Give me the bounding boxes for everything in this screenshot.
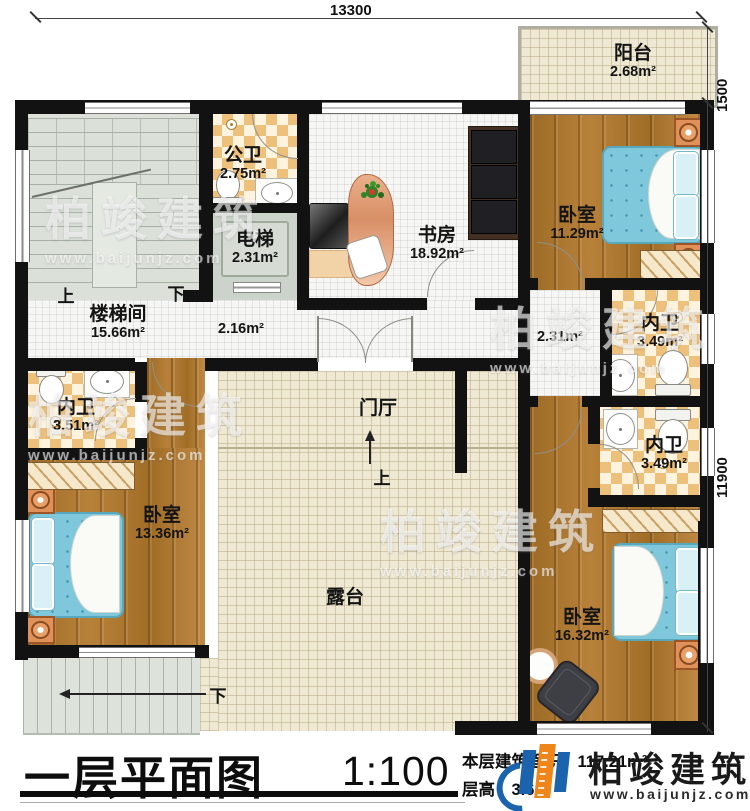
window bbox=[537, 723, 651, 735]
dimension-top-value: 13300 bbox=[330, 2, 372, 19]
title-underline bbox=[20, 791, 458, 797]
nightstand bbox=[26, 616, 55, 644]
wall bbox=[199, 213, 213, 300]
wall bbox=[28, 448, 147, 460]
stair-treads-top bbox=[28, 118, 199, 184]
label-bedroom-se: 卧室16.32m² bbox=[555, 608, 609, 644]
entry-up-label: 上 bbox=[374, 464, 391, 489]
label-bedroom-sw: 卧室13.36m² bbox=[135, 506, 189, 542]
window bbox=[701, 150, 715, 243]
wardrobe-ne bbox=[640, 250, 702, 279]
stair-landing bbox=[92, 182, 137, 288]
label-corridor-right: 2.31m² bbox=[537, 330, 583, 346]
elevator-door bbox=[233, 282, 281, 293]
dimension-line-right bbox=[707, 28, 708, 732]
bed-sw-pillow bbox=[32, 564, 54, 610]
window bbox=[701, 428, 715, 476]
dimension-right-upper-value: 1500 bbox=[714, 42, 731, 112]
bed-sw-duvet bbox=[70, 515, 120, 613]
bath-se-sink bbox=[606, 413, 635, 445]
stair-down-label: 下 bbox=[168, 280, 185, 305]
wall bbox=[135, 362, 147, 402]
sofa-cushion bbox=[471, 130, 517, 164]
bath-w-sink bbox=[90, 369, 124, 394]
window bbox=[701, 314, 715, 364]
label-study: 书房18.92m² bbox=[410, 226, 464, 262]
bed-sw-pillow bbox=[32, 518, 54, 564]
wall bbox=[309, 298, 427, 310]
wall bbox=[518, 100, 530, 731]
window bbox=[322, 102, 462, 114]
wall bbox=[28, 358, 135, 371]
label-stairwell: 楼梯间15.66m² bbox=[89, 305, 146, 341]
outdoor-down-label: 下 bbox=[210, 682, 227, 707]
label-terrace: 露台 bbox=[326, 588, 364, 609]
entry-up-arrow-stem bbox=[369, 440, 371, 464]
public-bath-sink bbox=[261, 182, 293, 204]
wall bbox=[205, 358, 318, 371]
wall bbox=[183, 290, 213, 302]
wall bbox=[530, 396, 538, 407]
sofa-cushion bbox=[471, 200, 517, 234]
bed-ne-pillow bbox=[674, 195, 698, 239]
label-elevator: 电梯2.31m² bbox=[232, 230, 278, 266]
label-bath-se: 内卫3.49m² bbox=[641, 436, 687, 472]
dimension-right-lower-value: 11900 bbox=[714, 398, 731, 498]
foyer-step-line bbox=[218, 447, 518, 449]
wardrobe-se bbox=[602, 509, 704, 533]
wall bbox=[600, 495, 702, 507]
balcony-sliding-door bbox=[530, 101, 685, 115]
label-balcony: 阳台2.68m² bbox=[610, 44, 656, 80]
brand-url: www.baijunjz.com bbox=[590, 786, 750, 802]
wall bbox=[455, 358, 467, 473]
stair-treads-right bbox=[135, 184, 199, 290]
logo-bar-blue2 bbox=[554, 752, 570, 792]
logo-bar-orange bbox=[534, 744, 556, 798]
desk-return bbox=[309, 250, 353, 278]
wall bbox=[600, 288, 612, 398]
wall bbox=[297, 100, 309, 310]
label-foyer: 门厅 bbox=[359, 399, 397, 420]
plan-scale: 1:100 bbox=[342, 748, 450, 795]
wall bbox=[588, 407, 600, 444]
window bbox=[15, 150, 30, 262]
dimension-tick bbox=[29, 11, 41, 23]
title-underline-thin bbox=[20, 802, 465, 803]
wall bbox=[199, 203, 309, 213]
entry-door-right-leaf bbox=[411, 316, 413, 362]
label-corridor-mid: 2.16m² bbox=[218, 322, 264, 338]
bed-se-pillow bbox=[676, 591, 700, 635]
wall bbox=[582, 396, 702, 407]
bed-se-pillow bbox=[676, 548, 700, 592]
stair-up-label: 上 bbox=[58, 282, 75, 307]
label-public-bath: 公卫2.75m² bbox=[220, 146, 266, 182]
wall bbox=[135, 438, 147, 448]
bath-ne-toilet-tank bbox=[655, 384, 691, 396]
label-bath-ne: 内卫3.49m² bbox=[637, 314, 683, 350]
window bbox=[85, 102, 190, 114]
wall bbox=[475, 298, 518, 310]
entry-door-left-leaf bbox=[317, 316, 319, 362]
wardrobe-w bbox=[25, 462, 135, 490]
entry-up-arrow-head bbox=[365, 430, 375, 441]
nightstand bbox=[26, 486, 55, 514]
brand-logo-icon bbox=[497, 742, 582, 804]
floor-plan-canvas: 楼梯间15.66m² 公卫2.75m² 电梯2.31m² 书房18.92m² 阳… bbox=[0, 0, 750, 811]
outdoor-down-arrow-stem bbox=[70, 693, 206, 695]
bed-se-duvet bbox=[614, 546, 664, 636]
wall bbox=[467, 358, 518, 371]
outdoor-stairs bbox=[23, 655, 200, 735]
wall bbox=[199, 100, 213, 213]
stair-treads-left bbox=[28, 184, 92, 290]
ceiling-light bbox=[226, 119, 237, 130]
computer bbox=[309, 203, 349, 249]
window bbox=[15, 520, 30, 612]
bath-ne-toilet bbox=[658, 350, 688, 386]
window bbox=[79, 647, 195, 658]
plan-title: 一层平面图 bbox=[24, 742, 264, 808]
outdoor-down-arrow-head bbox=[59, 689, 70, 699]
bed-ne-pillow bbox=[674, 152, 698, 196]
nightstand bbox=[674, 118, 703, 147]
wall bbox=[588, 488, 600, 507]
sofa-cushion bbox=[471, 165, 517, 199]
wall bbox=[413, 358, 455, 371]
plant bbox=[366, 186, 378, 198]
foyer-terrace-floor bbox=[218, 371, 518, 731]
label-bath-w: 内卫3.51m² bbox=[53, 398, 99, 434]
label-bedroom-ne: 卧室11.29m² bbox=[550, 206, 603, 242]
